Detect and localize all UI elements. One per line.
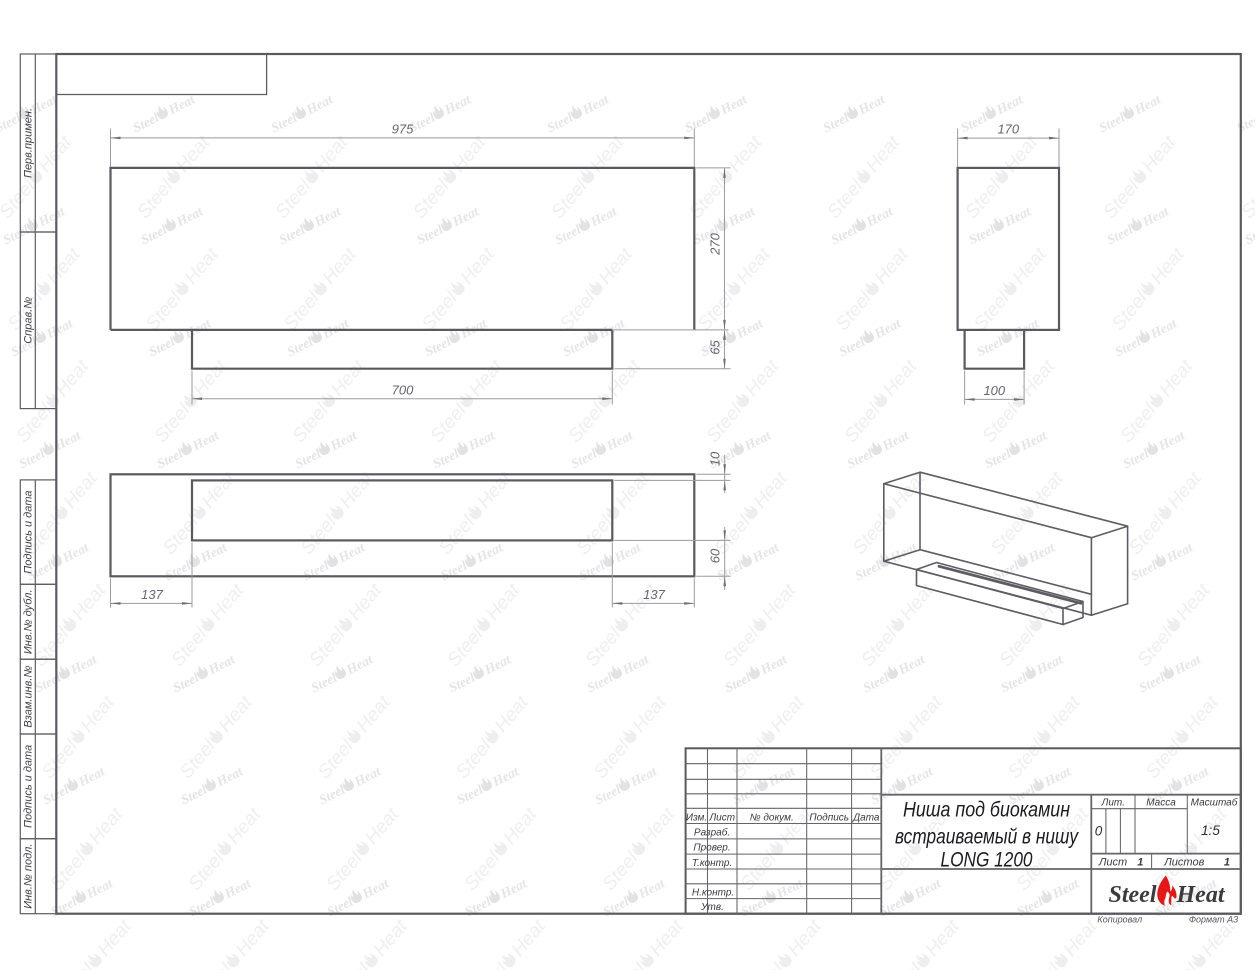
svg-text:Дата: Дата xyxy=(852,813,880,824)
svg-text:Т.контр.: Т.контр. xyxy=(692,858,732,869)
svg-text:Перв.примен.: Перв.примен. xyxy=(23,108,35,178)
svg-text:Подпись: Подпись xyxy=(809,813,849,824)
svg-text:Лист: Лист xyxy=(708,813,735,824)
svg-text:10: 10 xyxy=(708,451,723,466)
svg-text:1:5: 1:5 xyxy=(1201,823,1220,838)
svg-text:Листов: Листов xyxy=(1163,856,1204,868)
svg-text:Справ.№: Справ.№ xyxy=(23,297,35,344)
svg-text:60: 60 xyxy=(708,548,723,563)
svg-text:Heat: Heat xyxy=(1176,882,1226,908)
svg-text:LONG 1200: LONG 1200 xyxy=(941,849,1033,872)
svg-text:Масштаб: Масштаб xyxy=(1191,797,1238,809)
svg-text:Steel: Steel xyxy=(1109,882,1157,908)
svg-text:Формат А3: Формат А3 xyxy=(1189,915,1238,925)
svg-text:700: 700 xyxy=(392,382,414,397)
svg-text:Подпись и дата: Подпись и дата xyxy=(23,745,35,828)
svg-text:1: 1 xyxy=(1224,856,1230,868)
svg-text:Изм.: Изм. xyxy=(686,813,707,824)
svg-text:Инв.№ дубл.: Инв.№ дубл. xyxy=(23,590,35,655)
svg-text:Утв.: Утв. xyxy=(700,902,724,913)
svg-text:Взам.инв.№: Взам.инв.№ xyxy=(23,666,35,728)
svg-text:Разраб.: Разраб. xyxy=(694,827,730,839)
svg-text:170: 170 xyxy=(997,122,1019,137)
svg-text:Подпись и дата: Подпись и дата xyxy=(23,490,35,573)
svg-text:Инв.№ подл.: Инв.№ подл. xyxy=(23,844,35,909)
svg-text:Ниша под биокамин: Ниша под биокамин xyxy=(903,799,1070,822)
svg-text:65: 65 xyxy=(708,340,723,355)
svg-text:№ докум.: № докум. xyxy=(750,813,794,824)
svg-text:Лит.: Лит. xyxy=(1100,798,1124,809)
svg-text:Копировал: Копировал xyxy=(1097,915,1142,925)
svg-text:Провер.: Провер. xyxy=(693,843,730,854)
svg-text:Масса: Масса xyxy=(1146,798,1176,809)
svg-text:975: 975 xyxy=(392,122,414,137)
svg-text:270: 270 xyxy=(708,232,723,255)
svg-text:1: 1 xyxy=(1137,856,1143,868)
svg-text:137: 137 xyxy=(141,587,163,602)
svg-text:100: 100 xyxy=(983,383,1005,398)
svg-text:встраиваемый в нишу: встраиваемый в нишу xyxy=(895,826,1079,849)
svg-text:Лист: Лист xyxy=(1098,856,1127,868)
svg-text:0: 0 xyxy=(1095,824,1103,839)
svg-text:137: 137 xyxy=(643,587,665,602)
svg-text:Н.контр.: Н.контр. xyxy=(692,887,734,898)
